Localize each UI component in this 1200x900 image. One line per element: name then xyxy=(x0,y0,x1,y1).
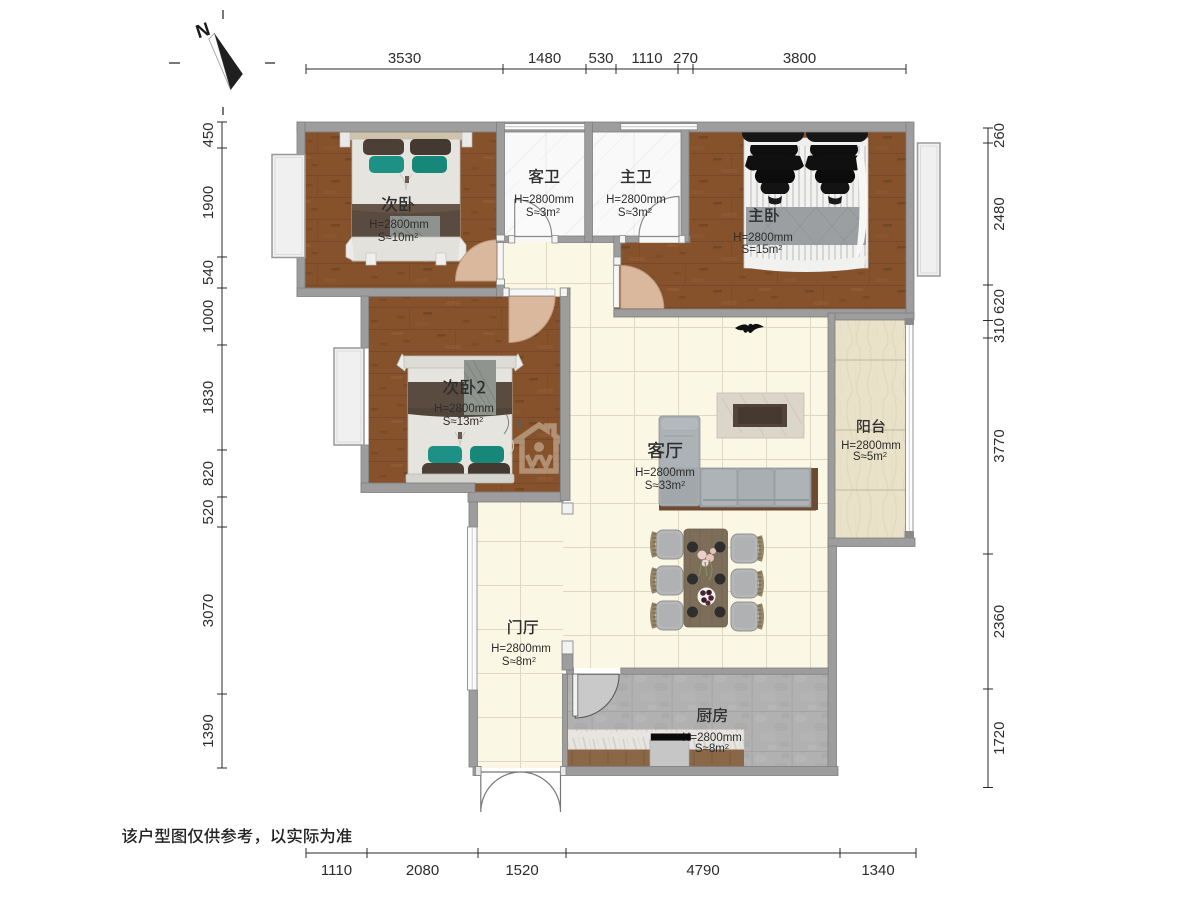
svg-text:H=2800mm: H=2800mm xyxy=(733,232,793,244)
svg-text:1390: 1390 xyxy=(200,714,217,747)
svg-text:1520: 1520 xyxy=(505,862,538,879)
svg-text:4790: 4790 xyxy=(686,862,719,879)
svg-text:H=2800mm: H=2800mm xyxy=(369,219,429,231)
svg-text:530: 530 xyxy=(588,50,613,67)
svg-text:S≈3m2: S≈3m2 xyxy=(618,206,652,219)
svg-text:S≈8m2: S≈8m2 xyxy=(502,655,536,668)
svg-text:1480: 1480 xyxy=(528,50,561,67)
svg-text:S≈3m2: S≈3m2 xyxy=(526,206,560,219)
svg-text:3800: 3800 xyxy=(783,50,816,67)
svg-text:H=2800mm: H=2800mm xyxy=(514,194,574,206)
svg-text:270: 270 xyxy=(673,50,698,67)
svg-text:S=15m2: S=15m2 xyxy=(742,243,783,256)
svg-text:520: 520 xyxy=(200,499,217,524)
svg-text:1110: 1110 xyxy=(321,862,352,879)
svg-text:3770: 3770 xyxy=(991,429,1008,462)
svg-text:H=2800mm: H=2800mm xyxy=(491,643,551,655)
svg-text:2080: 2080 xyxy=(406,862,439,879)
svg-text:1000: 1000 xyxy=(200,300,217,333)
svg-text:620: 620 xyxy=(991,289,1008,314)
svg-text:S≈8m2: S≈8m2 xyxy=(695,742,729,755)
svg-text:2480: 2480 xyxy=(991,197,1008,230)
svg-text:1720: 1720 xyxy=(991,722,1008,755)
svg-text:1900: 1900 xyxy=(200,186,217,219)
svg-text:310: 310 xyxy=(991,318,1008,343)
svg-text:1340: 1340 xyxy=(861,862,894,879)
svg-text:S≈13m2: S≈13m2 xyxy=(443,415,484,428)
svg-text:820: 820 xyxy=(200,461,217,486)
svg-text:H=2800mm: H=2800mm xyxy=(606,194,666,206)
svg-text:450: 450 xyxy=(200,122,217,147)
svg-text:3530: 3530 xyxy=(388,50,421,67)
svg-text:S≈33m2: S≈33m2 xyxy=(645,479,686,492)
svg-text:260: 260 xyxy=(991,123,1008,148)
svg-text:3070: 3070 xyxy=(200,594,217,627)
svg-text:2360: 2360 xyxy=(991,605,1008,638)
svg-text:1110: 1110 xyxy=(631,50,662,67)
svg-text:540: 540 xyxy=(200,260,217,285)
svg-text:1830: 1830 xyxy=(200,381,217,414)
svg-text:H=2800mm: H=2800mm xyxy=(434,403,494,415)
svg-text:S≈10m2: S≈10m2 xyxy=(378,231,419,244)
svg-text:H=2800mm: H=2800mm xyxy=(635,467,695,479)
svg-text:S≈5m2: S≈5m2 xyxy=(853,450,887,463)
